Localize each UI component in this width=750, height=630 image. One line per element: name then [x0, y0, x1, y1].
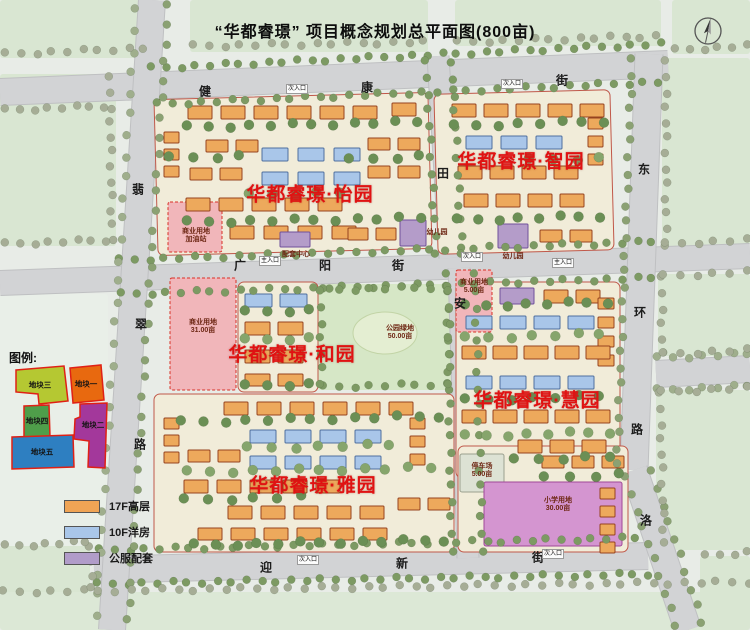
tree: [41, 539, 49, 547]
tree: [178, 64, 186, 72]
tree: [137, 393, 145, 401]
tree: [172, 543, 180, 551]
tree: [105, 117, 113, 125]
tree: [421, 576, 429, 584]
tree: [33, 589, 41, 597]
tree: [175, 255, 183, 263]
tree: [398, 534, 408, 544]
building: [188, 106, 212, 119]
building: [534, 316, 560, 329]
tree: [513, 536, 521, 544]
tree: [156, 150, 164, 158]
building: [327, 506, 351, 519]
tree: [678, 239, 686, 247]
tree: [73, 102, 81, 110]
tree: [641, 41, 649, 49]
tree: [711, 577, 719, 585]
building: [188, 450, 210, 462]
tree: [479, 548, 487, 556]
tree: [574, 212, 584, 222]
tree: [616, 347, 624, 355]
tree: [189, 538, 199, 548]
tree: [182, 120, 192, 130]
tree: [17, 49, 25, 57]
building: [524, 346, 548, 359]
tree: [503, 431, 513, 441]
tree: [390, 116, 400, 126]
tree: [396, 581, 404, 589]
tree: [107, 134, 115, 142]
legend-plot-label: 地块一: [75, 379, 98, 390]
tree: [170, 577, 178, 585]
tree: [507, 333, 517, 343]
tree: [1, 238, 9, 246]
tree: [176, 415, 186, 425]
tree: [668, 604, 676, 612]
tree: [416, 213, 426, 223]
tree: [156, 114, 164, 122]
tree: [147, 62, 155, 70]
building: [320, 430, 346, 443]
tree: [582, 82, 590, 90]
tree: [543, 430, 553, 440]
building: [250, 430, 276, 443]
tree: [626, 81, 634, 89]
tree: [468, 536, 476, 544]
tree: [663, 90, 671, 98]
tree: [131, 4, 139, 12]
tree: [539, 471, 549, 481]
tree: [350, 542, 358, 550]
building: [376, 228, 396, 240]
tree: [111, 588, 119, 596]
tree: [681, 578, 689, 586]
tree: [405, 574, 413, 582]
tree: [623, 234, 631, 242]
tree: [554, 44, 562, 52]
tree: [159, 57, 167, 65]
tree: [687, 586, 695, 594]
tree: [164, 151, 174, 161]
tree: [445, 350, 453, 358]
tree: [365, 284, 373, 292]
tree: [123, 615, 131, 623]
tree: [431, 250, 439, 258]
tree: [513, 118, 523, 128]
tree: [615, 428, 623, 436]
tree: [460, 331, 470, 341]
tree: [101, 485, 109, 493]
tree: [126, 109, 134, 117]
tree: [709, 237, 717, 245]
flats-label: 10F洋房: [109, 524, 150, 540]
tree: [621, 203, 629, 211]
building: [588, 136, 603, 147]
tree: [427, 382, 435, 390]
building: [484, 104, 508, 117]
tree: [303, 577, 311, 585]
tree: [662, 73, 670, 81]
tree: [295, 536, 305, 546]
tree: [288, 118, 298, 128]
tree: [617, 365, 625, 373]
building: [555, 346, 579, 359]
building: [190, 168, 212, 180]
tree: [685, 386, 693, 394]
tree: [603, 275, 611, 283]
tree: [262, 306, 272, 316]
tree: [381, 246, 389, 254]
tree: [595, 213, 605, 223]
tree: [478, 87, 486, 95]
tree: [108, 220, 116, 228]
tree: [407, 539, 415, 547]
tree: [137, 429, 145, 437]
tree: [614, 44, 622, 52]
tree: [350, 118, 360, 128]
tree: [558, 116, 568, 126]
tree: [570, 45, 578, 53]
building: [516, 104, 540, 117]
tree: [380, 465, 390, 475]
tree: [271, 578, 279, 586]
tree: [222, 59, 230, 67]
tree: [59, 239, 67, 247]
tree: [106, 89, 114, 97]
tree: [251, 538, 261, 548]
tree: [660, 538, 668, 546]
tree: [514, 280, 522, 288]
tree: [134, 486, 142, 494]
building: [257, 402, 281, 415]
tree: [380, 53, 388, 61]
tree: [251, 42, 259, 50]
tree: [514, 244, 522, 252]
tree: [261, 542, 269, 550]
tree: [442, 269, 450, 277]
tree: [324, 250, 332, 258]
tree: [281, 285, 289, 293]
tree: [659, 497, 667, 505]
tree: [671, 622, 679, 630]
tree: [614, 396, 622, 404]
tree: [569, 580, 577, 588]
tree: [197, 97, 205, 105]
tree: [223, 586, 231, 594]
tree: [583, 428, 593, 438]
tree: [743, 266, 750, 274]
tree: [565, 472, 575, 482]
tree: [205, 42, 213, 50]
tree: [447, 480, 455, 488]
tree: [285, 307, 295, 317]
tree: [502, 278, 510, 286]
building: [206, 140, 228, 152]
tree: [308, 215, 318, 225]
tree: [248, 252, 256, 260]
tree: [558, 275, 566, 283]
tree: [494, 574, 502, 582]
building: [220, 168, 242, 180]
tree: [618, 315, 626, 323]
legend-plot-label: 地块四: [26, 416, 49, 427]
tree: [659, 306, 667, 314]
tree: [396, 54, 404, 62]
tree: [598, 43, 606, 51]
tree: [203, 253, 211, 261]
tree: [304, 378, 314, 388]
tree: [410, 284, 418, 292]
tree: [444, 417, 452, 425]
tree: [475, 467, 483, 475]
tree: [423, 74, 431, 82]
tree: [228, 468, 238, 478]
tree: [285, 95, 293, 103]
tree: [661, 149, 669, 157]
tree: [358, 536, 368, 546]
building: [600, 488, 615, 499]
tree: [462, 86, 470, 94]
tree: [227, 578, 235, 586]
tree: [626, 122, 634, 130]
building: [184, 480, 208, 493]
tree: [169, 99, 177, 107]
tree: [603, 579, 611, 587]
tree: [253, 585, 261, 593]
public-swatch: [64, 552, 100, 565]
tree: [444, 286, 452, 294]
tree: [658, 451, 666, 459]
tree: [420, 535, 430, 545]
tree: [316, 286, 324, 294]
tree: [506, 85, 514, 93]
tree: [658, 526, 666, 534]
tree: [328, 120, 338, 130]
tree: [412, 117, 422, 127]
tree: [257, 97, 265, 105]
tree: [306, 119, 316, 129]
building: [164, 132, 179, 143]
tree: [240, 305, 250, 315]
tree: [286, 413, 296, 423]
tree: [663, 179, 671, 187]
tree: [644, 540, 652, 548]
tree: [369, 413, 379, 423]
tree: [708, 347, 716, 355]
tree: [108, 146, 116, 154]
tree: [118, 235, 126, 243]
tree: [497, 539, 505, 547]
tree: [522, 428, 532, 438]
tree: [368, 249, 376, 257]
tree: [188, 152, 198, 162]
tree: [285, 381, 295, 391]
tree: [229, 95, 237, 103]
tree: [1, 104, 9, 112]
tree: [368, 154, 378, 164]
tree: [446, 512, 454, 520]
legend-plot-label: 地块三: [29, 380, 52, 391]
building: [287, 106, 311, 119]
tree: [352, 384, 360, 392]
tree: [175, 586, 183, 594]
tree: [321, 57, 329, 65]
tree: [476, 512, 484, 520]
tree: [534, 454, 544, 464]
building: [353, 106, 377, 119]
tree: [280, 251, 288, 259]
tree: [628, 490, 636, 498]
tree: [483, 332, 493, 342]
tree: [617, 378, 625, 386]
tree: [445, 303, 453, 311]
tree: [126, 599, 134, 607]
tree: [453, 137, 461, 145]
tree: [662, 208, 670, 216]
tree: [661, 56, 669, 64]
tree: [211, 540, 221, 550]
tree: [301, 92, 309, 100]
tree: [521, 298, 531, 308]
tree: [616, 581, 624, 589]
tree: [513, 212, 523, 222]
tree: [449, 119, 459, 129]
tree: [426, 584, 434, 592]
building: [398, 498, 420, 510]
tree: [318, 320, 326, 328]
building: [186, 198, 210, 211]
tree: [654, 79, 662, 87]
tree: [731, 551, 739, 559]
tree: [426, 463, 436, 473]
tree: [368, 119, 378, 129]
tree: [205, 467, 215, 477]
tree: [350, 412, 360, 422]
building: [261, 506, 285, 519]
tree: [618, 533, 626, 541]
tree: [336, 539, 346, 549]
tree: [662, 166, 670, 174]
page-title: “华都睿璟” 项目概念规划总平面图(800亩): [0, 18, 750, 42]
tree: [659, 270, 667, 278]
building: [164, 435, 179, 446]
tree: [647, 238, 655, 246]
tree: [743, 547, 750, 555]
building: [598, 317, 614, 328]
tree: [583, 570, 591, 578]
tree: [314, 538, 324, 548]
tree: [267, 443, 277, 453]
tree: [659, 348, 667, 356]
tree: [235, 251, 243, 259]
tree: [206, 584, 214, 592]
tree: [555, 579, 563, 587]
tree: [199, 417, 209, 427]
tree: [149, 291, 157, 299]
tree: [451, 93, 459, 101]
tree: [647, 274, 655, 282]
building: [392, 103, 416, 116]
tree: [574, 241, 582, 249]
tree: [304, 304, 314, 314]
tree: [472, 368, 480, 376]
tree: [394, 212, 404, 222]
tree: [126, 44, 134, 52]
tree: [148, 263, 156, 271]
legend-plot-label: 地块五: [31, 447, 54, 458]
tree: [159, 77, 167, 85]
tree: [535, 119, 545, 129]
tree: [491, 581, 499, 589]
tree: [471, 287, 479, 295]
tree: [726, 270, 734, 278]
tree: [266, 121, 276, 131]
tree: [434, 413, 444, 423]
tree: [654, 572, 662, 580]
tree: [694, 601, 702, 609]
tree: [546, 278, 554, 286]
tree: [638, 78, 646, 86]
tree: [676, 271, 684, 279]
site-plan-canvas: 健康街广阳街迎新街翡翠路东环路田安洛商业用地加油站商业用地31.00亩公园绿地5…: [0, 0, 750, 630]
tree: [651, 554, 659, 562]
building: [164, 452, 179, 463]
tree: [485, 242, 493, 250]
tree: [126, 90, 134, 98]
tree: [318, 582, 326, 590]
tree: [469, 245, 477, 253]
tree: [365, 52, 373, 60]
tree: [619, 333, 627, 341]
tree: [511, 45, 519, 53]
tree: [109, 236, 117, 244]
tree: [725, 386, 733, 394]
tree: [467, 51, 475, 59]
tree: [590, 277, 598, 285]
tree: [556, 211, 566, 221]
tree: [405, 91, 413, 99]
tree: [427, 136, 435, 144]
tree: [379, 584, 387, 592]
tree: [297, 42, 305, 50]
tree: [716, 551, 724, 559]
tree: [335, 383, 343, 391]
tree: [270, 586, 278, 594]
tree: [478, 530, 486, 538]
tree: [152, 207, 160, 215]
building: [570, 230, 592, 242]
tree: [628, 570, 636, 578]
tree: [31, 106, 39, 114]
tree: [582, 42, 590, 50]
tree: [408, 51, 416, 59]
tree: [460, 393, 470, 403]
tree: [152, 170, 160, 178]
tree: [352, 287, 360, 295]
tree: [430, 215, 438, 223]
tree: [661, 103, 669, 111]
tree: [432, 232, 440, 240]
tree: [669, 353, 677, 361]
tree: [75, 236, 83, 244]
tree: [631, 534, 639, 542]
tree: [273, 539, 283, 549]
tree: [265, 58, 273, 66]
tree: [213, 98, 221, 106]
tree: [615, 414, 623, 422]
tree: [663, 517, 671, 525]
tree: [123, 131, 131, 139]
